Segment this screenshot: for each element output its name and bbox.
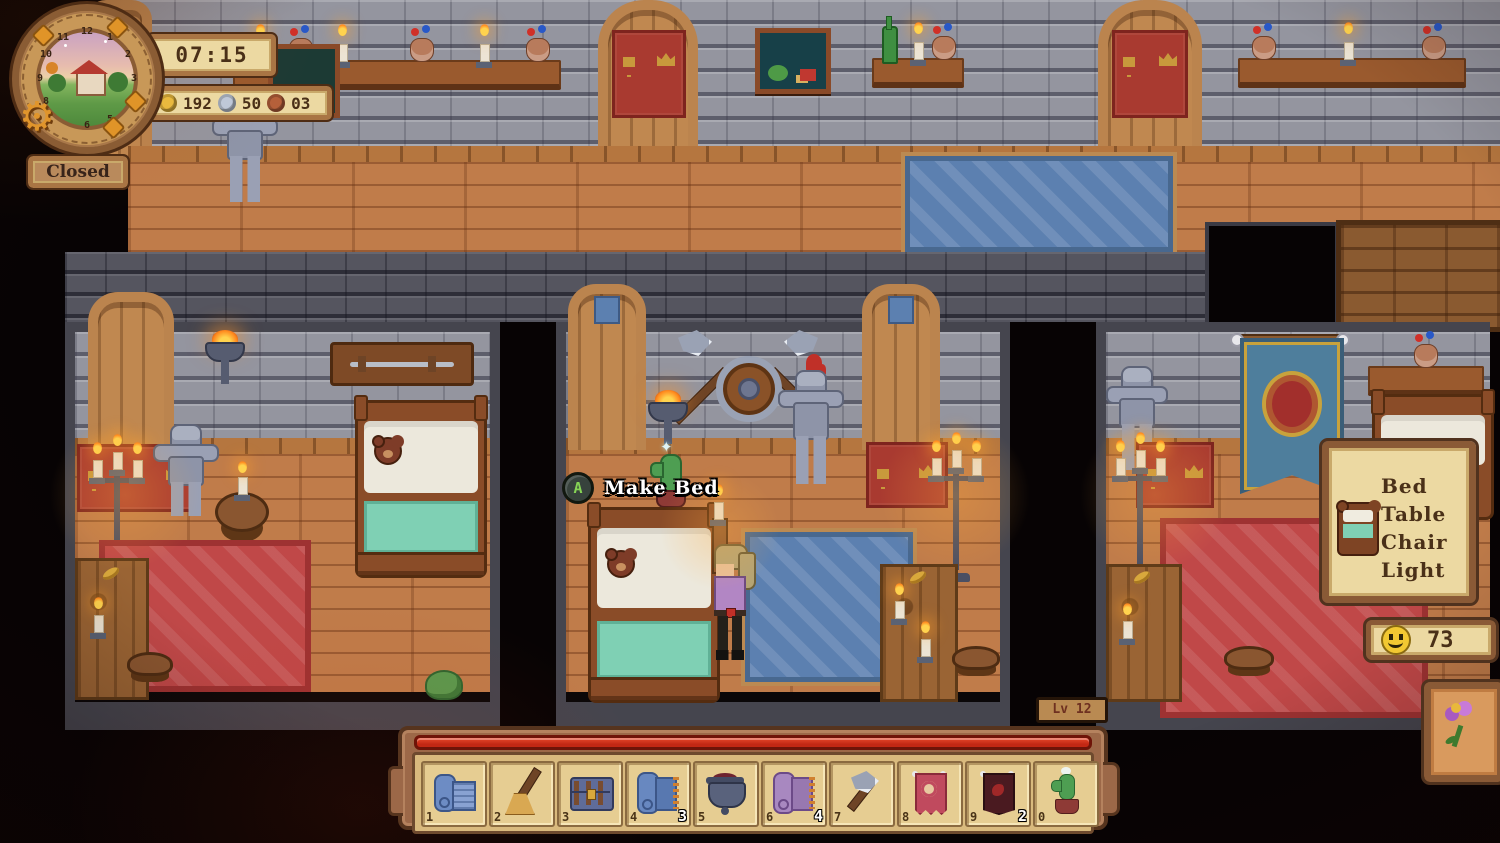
wall-sconce-icon: [205, 330, 245, 390]
hotbar-slot-2[interactable]: 2: [489, 761, 555, 827]
hall-doorway: [598, 0, 698, 156]
axe-icon: [839, 769, 885, 815]
room-left: [65, 322, 500, 730]
green-plant: [425, 670, 463, 700]
green-bottle-icon: [882, 26, 898, 64]
hotbar-slot-0[interactable]: 0: [1033, 761, 1099, 827]
flower-vase-icon: [410, 30, 432, 62]
silver-value: 50: [242, 94, 261, 113]
table: [880, 564, 958, 702]
wall-shelf: [1238, 58, 1466, 88]
hotbar-right-tab[interactable]: [1103, 762, 1120, 816]
hotbar-left-tab[interactable]: [388, 766, 403, 816]
red-banner: [1112, 30, 1188, 118]
sword-plaque: [330, 342, 474, 386]
copper-value: 03: [291, 94, 310, 113]
room-middle: ✦: [556, 322, 1010, 730]
wall-shelf: [1368, 366, 1484, 396]
requirement-item: Light: [1381, 556, 1448, 584]
door-pennant-icon: [888, 296, 914, 324]
hotbar-slot-5[interactable]: 5: [693, 761, 759, 827]
stool: [952, 646, 1000, 670]
bedroom-door[interactable]: [568, 284, 646, 450]
flower-vase-icon: [1422, 28, 1444, 60]
food-painting: [755, 28, 831, 94]
stool: [127, 652, 173, 676]
door-pennant-icon: [594, 296, 620, 324]
requirement-item: Chair: [1381, 528, 1448, 556]
interaction-prompt: A Make Bed: [562, 472, 719, 504]
chest-icon: [567, 769, 613, 815]
requirement-item: Table: [1381, 500, 1448, 528]
happiness-counter: 73: [1366, 620, 1496, 660]
hotbar-slot-6[interactable]: 64: [761, 761, 827, 827]
gamepad-a-button-icon: A: [562, 472, 594, 504]
bedroom-door[interactable]: [862, 284, 940, 450]
flower-vase-icon: [1414, 336, 1436, 368]
gear-icon: ⚙: [19, 97, 55, 137]
flower-vase-icon: [1252, 28, 1274, 60]
requirement-item: Bed: [1381, 472, 1448, 500]
gold-value: 192: [183, 94, 212, 113]
prompt-action-label: Make Bed: [604, 477, 719, 499]
happiness-value: 73: [1427, 628, 1454, 653]
cactus-icon: [1043, 769, 1089, 815]
candle-icon: [1340, 30, 1356, 66]
feather-icon: [1132, 569, 1152, 586]
pink-banner-icon: [907, 769, 953, 815]
candle-icon: [476, 32, 492, 68]
hotbar-slot-7[interactable]: 7: [829, 761, 895, 827]
hotbar-tray: 1 2 3: [412, 752, 1094, 834]
hotbar-slot-1[interactable]: 1: [421, 761, 487, 827]
dark-banner-icon: [975, 769, 1021, 815]
long-table: [75, 558, 149, 700]
flower-icon: [1441, 699, 1477, 749]
armor-statue: [153, 424, 219, 554]
flower-vase-icon: [932, 28, 954, 60]
cooking-pot-icon: [703, 769, 749, 815]
room-requirements-panel: Bed Table Chair Light: [1322, 441, 1476, 603]
red-banner: [612, 30, 686, 118]
teddy-bear-icon: [374, 437, 402, 465]
blue-rug-roll-icon: [635, 769, 681, 815]
renown-progress-bar: [414, 735, 1092, 750]
feather-icon: [101, 565, 121, 582]
bed-icon: [1337, 502, 1379, 556]
stool: [1224, 646, 1274, 670]
blueprint-roll-icon: [431, 769, 477, 815]
level-badge: Lv 12: [1036, 697, 1108, 723]
copper-coin-icon: [267, 94, 285, 112]
feather-icon: [908, 569, 928, 586]
table: [1106, 564, 1182, 702]
clock-widget: 12 1 2 3 4 5 6 8 9 10 11 ⚙ Closed: [12, 4, 172, 194]
bed-make[interactable]: [588, 507, 720, 703]
hotbar-slot-4[interactable]: 43: [625, 761, 691, 827]
currency-bar: 192 50 03: [148, 86, 332, 120]
hall-doorway: [1098, 0, 1202, 156]
player-character: [704, 544, 756, 662]
wooden-crate: [1336, 220, 1500, 332]
wall-shelf: [872, 58, 964, 88]
flower-vase-icon: [526, 30, 548, 62]
armor-statue-plume: [778, 366, 844, 536]
dark-opening: [1205, 222, 1339, 330]
clock-dial: 12 1 2 3 4 5 6 8 9 10 11 ⚙: [12, 4, 162, 154]
hall-baseboard: [128, 146, 1500, 162]
bed[interactable]: [355, 400, 487, 578]
hall-blue-rug: [905, 156, 1173, 252]
silver-coin-icon: [218, 94, 236, 112]
teddy-bear-icon: [607, 550, 635, 578]
status-sign: Closed: [28, 156, 128, 188]
hotbar: 1 2 3: [398, 726, 1108, 830]
broom-icon: [499, 769, 545, 815]
smiley-icon: [1381, 625, 1411, 655]
candelabra: [928, 452, 984, 582]
purple-rug-roll-icon: [771, 769, 817, 815]
side-table: [215, 492, 269, 532]
hotbar-slot-9[interactable]: 92: [965, 761, 1031, 827]
game-screen: ✦: [0, 0, 1500, 843]
decorate-button[interactable]: [1424, 682, 1500, 782]
hotbar-slot-8[interactable]: 8: [897, 761, 963, 827]
hotbar-slot-3[interactable]: 3: [557, 761, 623, 827]
candle-icon: [910, 30, 926, 66]
